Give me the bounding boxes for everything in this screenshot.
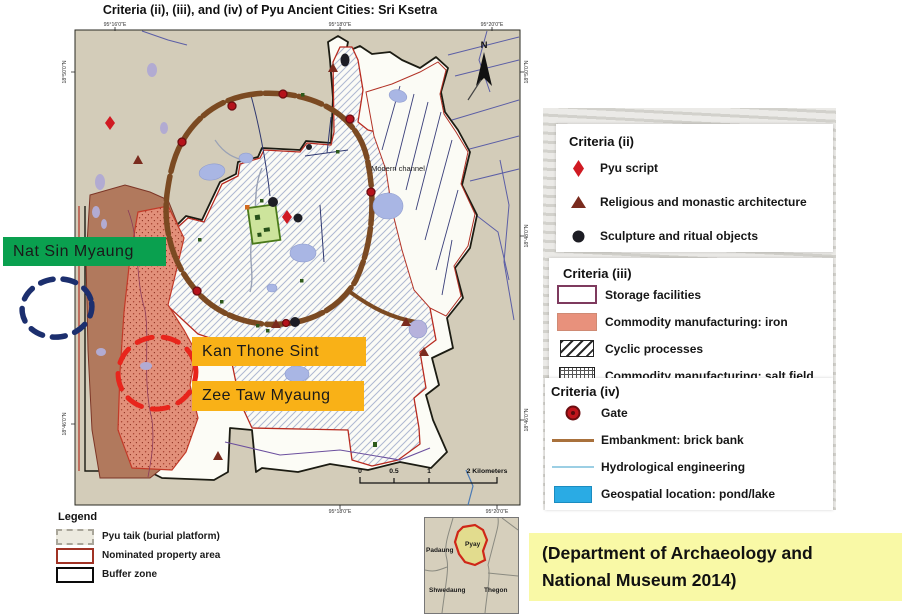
callout-zee-taw-myaung-label: Zee Taw Myaung: [202, 387, 331, 405]
callout-nat-sin-myaung: Nat Sin Myaung: [3, 237, 166, 266]
coord-left-2: 18°46'0"N: [62, 412, 68, 435]
criteria-item-architecture: Religious and monastic architecture: [556, 187, 833, 217]
embankment-line-icon: [545, 439, 601, 442]
criteria-item-label: Pyu script: [600, 161, 658, 175]
storage-swatch-icon: [549, 285, 605, 304]
callout-kan-thone-sint-label: Kan Thone Sint: [202, 343, 319, 361]
criteria-item-embankment: Embankment: brick bank: [545, 427, 833, 453]
salt-field-marker: [245, 205, 250, 210]
architecture-triangle-icon: [556, 196, 600, 208]
storage-facility: [248, 204, 281, 244]
cyclic-hatch-swatch-icon: [549, 340, 605, 357]
inset-map-svg: Padaung Pyay Shwedaung Thegon: [425, 518, 518, 613]
criteria-ii-section: Criteria (ii) Pyu script Religious and m…: [556, 124, 833, 252]
north-label: N: [481, 40, 488, 51]
pond-swatch-icon: [545, 486, 601, 503]
legend-item-buffer-zone: Buffer zone: [56, 565, 306, 584]
buffer-zone-swatch-icon: [56, 567, 94, 583]
legend-item-pyu-taik: Pyu taik (burial platform): [56, 527, 306, 546]
hydrological-line-icon: [545, 466, 601, 468]
inset-label-padaung: Padaung: [426, 547, 453, 554]
criteria-item-sculpture: Sculpture and ritual objects: [556, 221, 833, 251]
figure-page: Modern channel N 0 0.5 1 2 Kilometers 95…: [0, 0, 902, 614]
iron-swatch-icon: [549, 313, 605, 331]
coord-right-1: 18°50'0"N: [524, 60, 530, 83]
coord-bottom-2: 95°20'0"E: [486, 509, 509, 515]
legend-item-label: Nominated property area: [102, 550, 220, 561]
criteria-iv-section: Criteria (iv) Gate Embankment: brick ban…: [545, 378, 833, 510]
inset-label-shwedaung: Shwedaung: [429, 587, 466, 594]
coord-bottom-1: 95°18'0"E: [329, 509, 352, 515]
scale-tick-05: 0.5: [389, 468, 399, 475]
inset-label-thegon: Thegon: [484, 587, 507, 594]
criteria-item-label: Storage facilities: [605, 288, 701, 302]
citation-line-1: (Department of Archaeology and: [542, 540, 902, 567]
pyu-taik-swatch-icon: [56, 529, 94, 545]
callout-nat-sin-myaung-label: Nat Sin Myaung: [13, 243, 134, 261]
legend-item-label: Pyu taik (burial platform): [102, 531, 220, 542]
inset-locator-map: Padaung Pyay Shwedaung Thegon: [424, 517, 519, 614]
criteria-item-label: Commodity manufacturing: iron: [605, 315, 788, 329]
criteria-item-label: Embankment: brick bank: [601, 433, 744, 447]
criteria-item-label: Gate: [601, 406, 628, 420]
criteria-item-label: Hydrological engineering: [601, 460, 745, 474]
pyu-script-diamond-icon: [556, 160, 600, 177]
criteria-ii-heading: Criteria (ii): [556, 124, 833, 149]
criteria-item-gate: Gate: [545, 400, 833, 426]
criteria-item-label: Cyclic processes: [605, 342, 703, 356]
sculpture-circle-icon: [556, 230, 600, 243]
nominated-area-swatch-icon: [56, 548, 94, 564]
callout-kan-thone-sint: Kan Thone Sint: [192, 337, 366, 366]
criteria-item-pyu-script: Pyu script: [556, 153, 833, 183]
modern-channel-label: Modern channel: [371, 164, 425, 173]
legend-item-label: Buffer zone: [102, 569, 157, 580]
criteria-item-label: Geospatial location: pond/lake: [601, 487, 775, 501]
legend-heading: Legend: [58, 511, 306, 523]
criteria-item-label: Religious and monastic architecture: [600, 195, 807, 209]
coord-left-1: 18°50'0"N: [62, 60, 68, 83]
citation-line-2: National Museum 2014): [542, 567, 902, 594]
criteria-iii-heading: Criteria (iii): [549, 258, 833, 281]
coord-right-2: 18°48'0"N: [524, 224, 530, 247]
criteria-iv-heading: Criteria (iv): [545, 378, 833, 399]
criteria-item-label: Sculpture and ritual objects: [600, 229, 758, 243]
criteria-item-storage: Storage facilities: [549, 281, 833, 308]
criteria-legend-panel: Criteria (ii) Pyu script Religious and m…: [543, 108, 836, 510]
callout-zee-taw-myaung: Zee Taw Myaung: [192, 381, 364, 411]
inset-label-pyay: Pyay: [465, 541, 481, 548]
criteria-iii-section: Criteria (iii) Storage facilities Commod…: [549, 258, 833, 380]
criteria-item-cyclic: Cyclic processes: [549, 335, 833, 362]
coord-right-3: 18°46'0"N: [524, 408, 530, 431]
criteria-item-iron: Commodity manufacturing: iron: [549, 308, 833, 335]
criteria-item-hydrological: Hydrological engineering: [545, 454, 833, 480]
criteria-item-pond-lake: Geospatial location: pond/lake: [545, 481, 833, 507]
scale-end-label: 2 Kilometers: [467, 468, 508, 475]
gate-dot-icon: [545, 405, 601, 421]
scale-tick-0: 0: [358, 468, 362, 475]
scale-tick-1: 1: [427, 468, 431, 475]
figure-title: Criteria (ii), (iii), and (iv) of Pyu An…: [55, 3, 485, 17]
citation-box: (Department of Archaeology and National …: [529, 533, 902, 601]
map-legend: Legend Pyu taik (burial platform) Nomina…: [56, 511, 306, 606]
legend-item-nominated-area: Nominated property area: [56, 546, 306, 565]
